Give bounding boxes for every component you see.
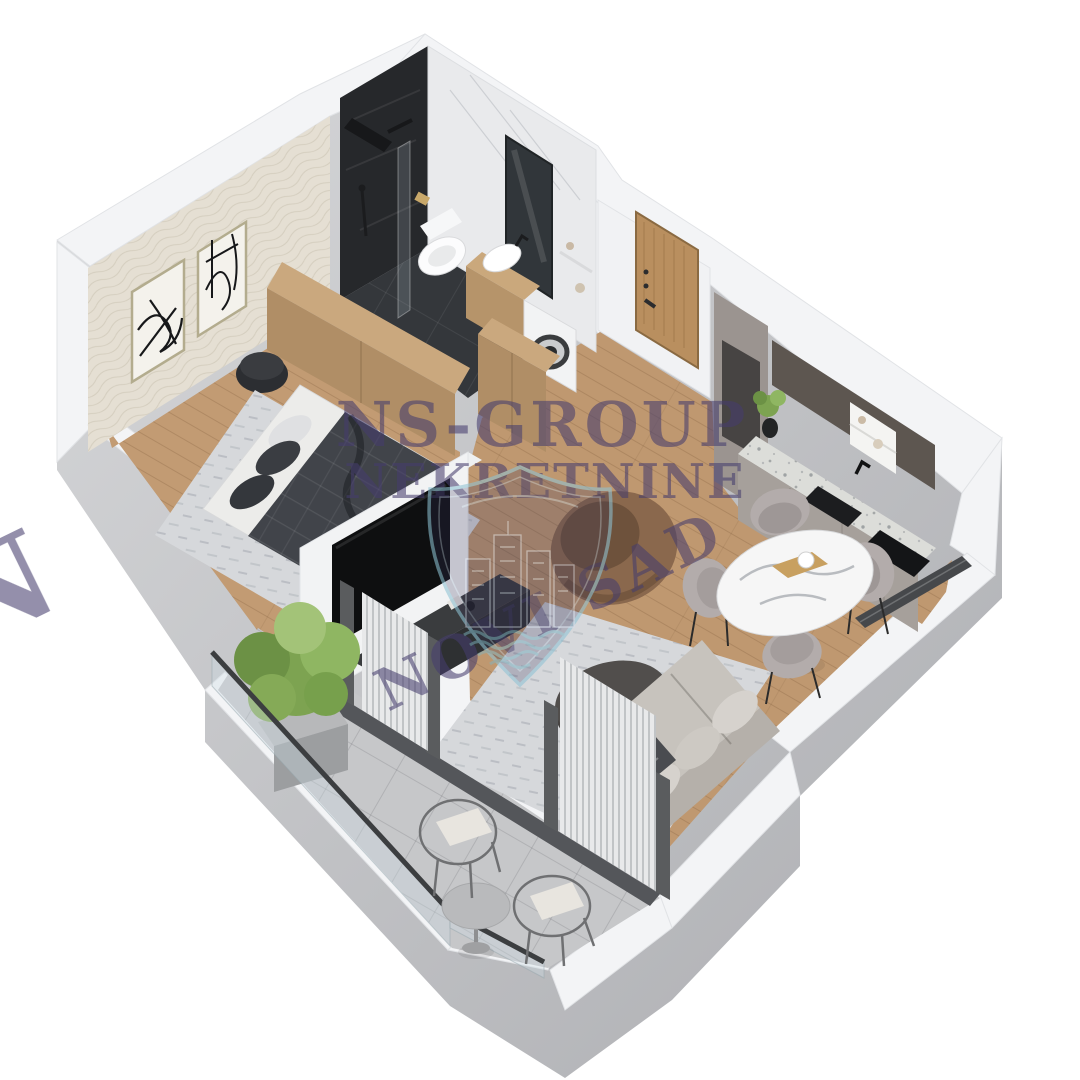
door-frame-post-4 xyxy=(656,772,670,900)
wall-left-outer xyxy=(57,242,90,462)
shelf-decor xyxy=(566,242,574,250)
shelf-vase-1 xyxy=(858,416,866,424)
pouf xyxy=(240,352,284,380)
plant-vase xyxy=(762,418,778,438)
apartment-3d-scene: NS-GROUP NEKRETNINE NOVI SAD N xyxy=(0,0,1080,1080)
door-lock-upper xyxy=(644,270,649,275)
shelf-towel xyxy=(575,283,585,293)
coffee-cup xyxy=(798,552,814,568)
floorplan-render: NS-GROUP NEKRETNINE NOVI SAD N xyxy=(0,0,1080,1080)
watermark-line1: NS-GROUP xyxy=(336,388,749,461)
door-frame-post-3 xyxy=(544,700,558,832)
shower-glass-panel xyxy=(398,141,410,318)
shelf-vase-2 xyxy=(873,439,883,449)
door-lock-lower xyxy=(644,284,649,289)
hand-shower-head xyxy=(359,185,366,192)
